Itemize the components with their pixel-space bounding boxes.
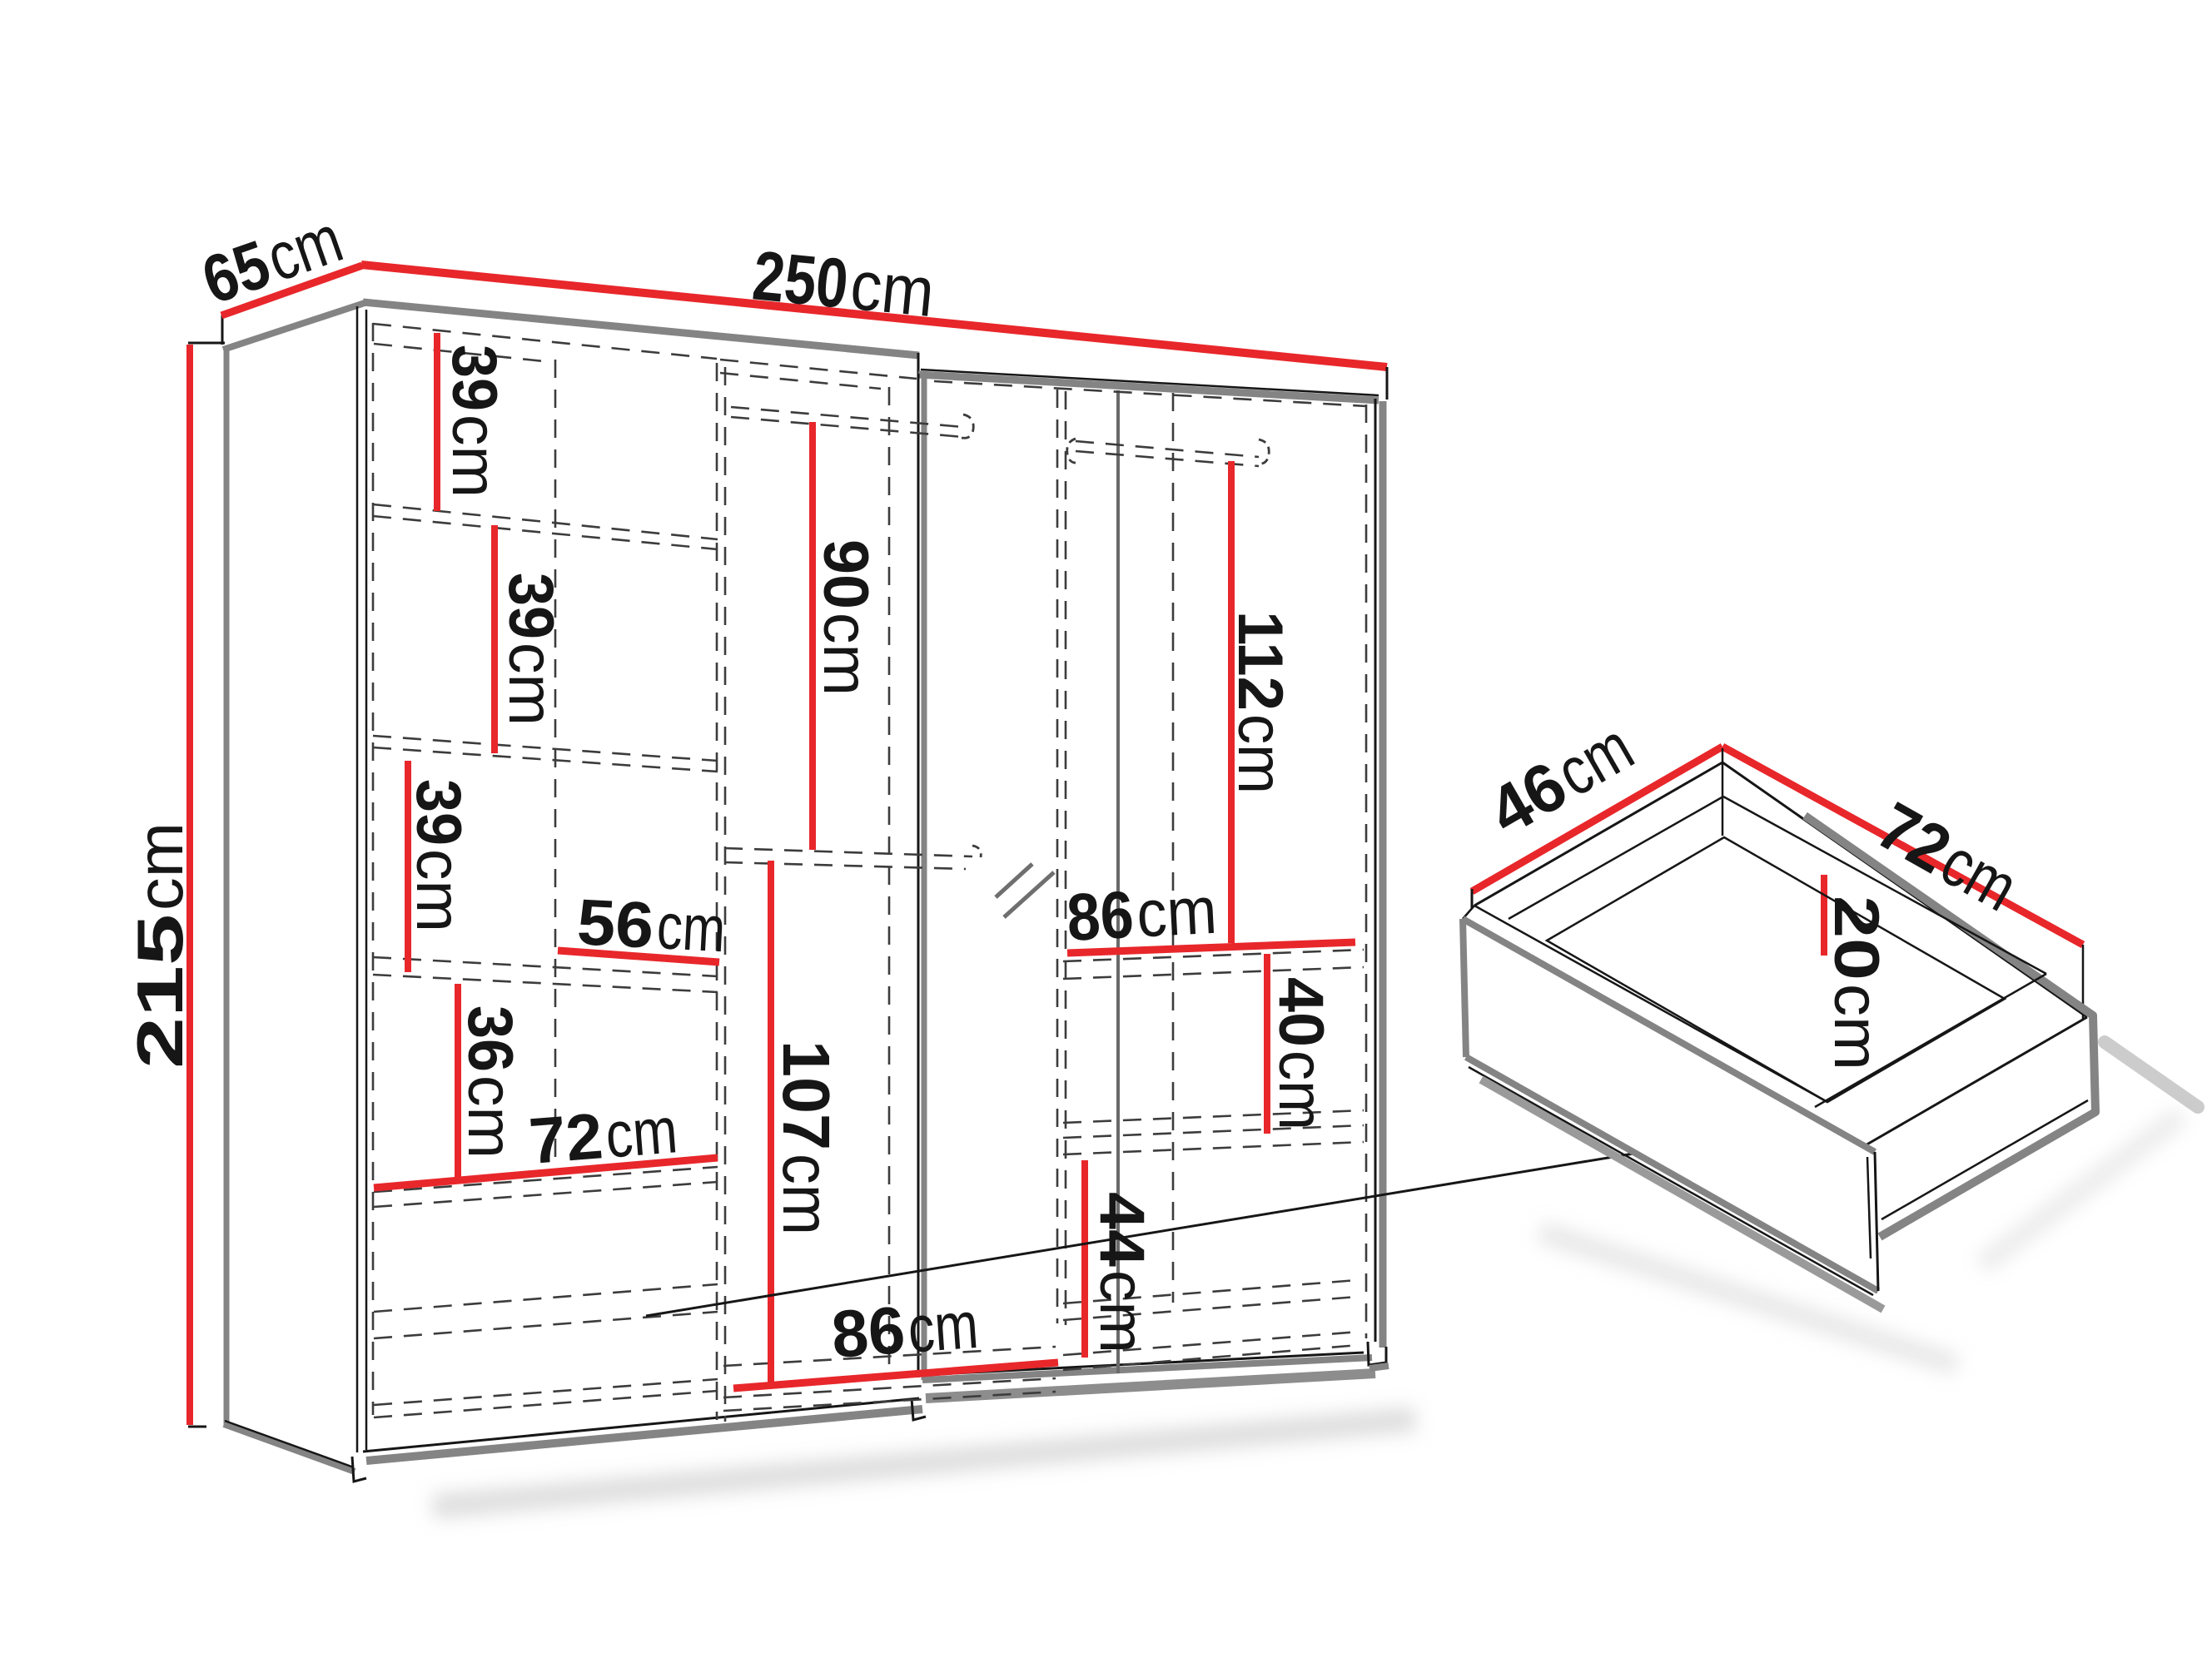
svg-text:cm: cm	[403, 849, 474, 932]
svg-text:90: 90	[810, 539, 881, 609]
svg-text:40: 40	[1265, 977, 1336, 1047]
svg-text:107: 107	[769, 1040, 843, 1150]
svg-text:56: 56	[575, 885, 655, 962]
svg-text:39: 39	[495, 573, 566, 639]
svg-text:cm: cm	[655, 889, 727, 966]
svg-text:cm: cm	[769, 1154, 843, 1235]
svg-text:cm: cm	[123, 822, 196, 911]
svg-text:cm: cm	[1135, 873, 1219, 951]
svg-text:44: 44	[1086, 1192, 1157, 1267]
svg-text:112: 112	[1225, 611, 1295, 711]
svg-text:cm: cm	[439, 414, 510, 498]
svg-text:cm: cm	[603, 1093, 680, 1171]
svg-text:cm: cm	[810, 613, 881, 696]
svg-text:cm: cm	[455, 1075, 525, 1159]
svg-text:cm: cm	[1821, 984, 1891, 1070]
svg-text:39: 39	[403, 779, 474, 846]
svg-text:86: 86	[1065, 877, 1136, 955]
svg-text:86: 86	[829, 1293, 907, 1372]
svg-text:cm: cm	[906, 1288, 981, 1367]
svg-text:20: 20	[1821, 896, 1891, 980]
svg-text:72: 72	[526, 1099, 605, 1178]
svg-text:215: 215	[123, 914, 196, 1069]
svg-text:cm: cm	[495, 643, 566, 726]
svg-text:cm: cm	[1225, 714, 1295, 794]
svg-text:39: 39	[439, 345, 510, 411]
svg-text:36: 36	[455, 1005, 525, 1072]
svg-text:cm: cm	[1265, 1050, 1336, 1130]
svg-text:250: 250	[749, 236, 852, 323]
svg-text:cm: cm	[1086, 1270, 1157, 1353]
svg-text:cm: cm	[848, 246, 938, 331]
